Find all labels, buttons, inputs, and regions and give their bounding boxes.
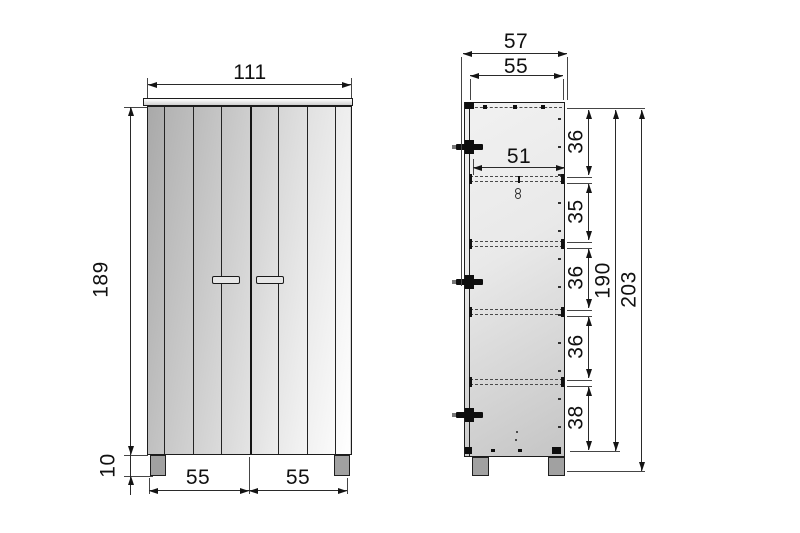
shelf-dashed	[470, 176, 563, 182]
hinge-icon	[465, 408, 474, 422]
side-view: 57 55 51 36 35	[0, 0, 800, 533]
compartment-label-2: 35	[565, 177, 588, 247]
carcass-height-label: 190	[592, 246, 615, 316]
dim-line-depth	[463, 53, 567, 54]
arrowhead	[554, 73, 563, 79]
side-leg-back	[548, 457, 565, 476]
arrowhead	[473, 165, 482, 171]
compartment-label-3: 36	[565, 243, 588, 313]
corner-fitting	[465, 447, 472, 454]
corner-fitting	[552, 447, 561, 454]
extension-line	[567, 471, 645, 472]
arrowhead	[639, 462, 645, 471]
shelf-support-mark	[469, 174, 472, 184]
corner-fitting	[465, 102, 474, 109]
compartment-label-4: 36	[565, 312, 588, 382]
compartment-label-5: 38	[565, 383, 588, 453]
technical-drawing-canvas: 111 189 10 55 55	[0, 0, 800, 533]
extension-line	[470, 79, 471, 100]
shelf-dashed	[470, 241, 563, 247]
arrowhead	[639, 110, 645, 119]
arrowhead	[613, 442, 619, 451]
side-leg-front	[472, 457, 489, 476]
extension-line	[563, 79, 564, 100]
shelf-dashed	[470, 309, 563, 315]
arrowhead	[470, 73, 479, 79]
depth-label: 57	[490, 30, 542, 53]
shelf-support-mark	[518, 176, 520, 183]
top-depth-label: 55	[490, 55, 542, 78]
dot-mark	[515, 439, 517, 441]
shelf-support-mark	[469, 239, 472, 249]
hinge-icon	[465, 275, 474, 289]
fitting-mark	[541, 105, 545, 109]
fitting-mark	[513, 105, 517, 109]
fitting-mark	[483, 105, 487, 109]
fitting-mark	[491, 449, 495, 452]
shelf-support-mark	[469, 307, 472, 317]
dim-line-carcass-height	[615, 110, 616, 451]
shelf-dashed	[470, 379, 563, 385]
extension-line	[461, 57, 462, 286]
hinge-icon	[465, 140, 474, 154]
compartment-label-1: 36	[565, 107, 588, 177]
arrowhead	[558, 51, 567, 57]
arrowhead	[613, 110, 619, 119]
extension-line	[567, 57, 568, 100]
arrowhead	[463, 51, 472, 57]
total-height-label: 203	[618, 255, 641, 325]
shelf-depth-label: 51	[493, 145, 545, 168]
screw-symbol	[515, 193, 521, 199]
shelf-support-mark	[469, 377, 472, 387]
dot-mark	[516, 431, 518, 433]
fitting-mark	[518, 449, 522, 452]
dim-line-total-height	[641, 110, 642, 471]
